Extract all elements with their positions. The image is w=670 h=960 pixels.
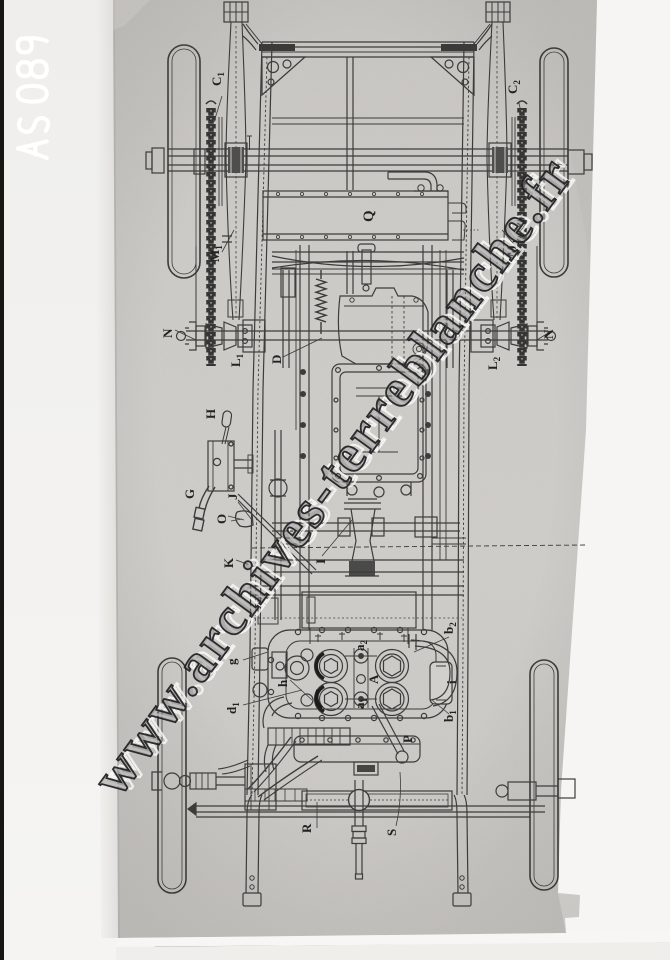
svg-text:G: G bbox=[182, 489, 197, 499]
svg-text:i: i bbox=[444, 680, 459, 684]
svg-text:J: J bbox=[225, 493, 240, 500]
svg-text:I: I bbox=[313, 559, 328, 564]
svg-text:A: A bbox=[366, 674, 381, 684]
svg-text:H: H bbox=[203, 409, 218, 419]
svg-text:D: D bbox=[269, 355, 284, 364]
svg-text:O: O bbox=[214, 514, 229, 524]
svg-text:S: S bbox=[384, 829, 399, 836]
svg-text:R: R bbox=[299, 823, 314, 833]
svg-text:h: h bbox=[275, 679, 290, 687]
svg-text:Q: Q bbox=[361, 210, 377, 222]
svg-text:N: N bbox=[160, 328, 175, 338]
svg-text:P: P bbox=[400, 735, 415, 743]
svg-text:N: N bbox=[541, 329, 556, 339]
